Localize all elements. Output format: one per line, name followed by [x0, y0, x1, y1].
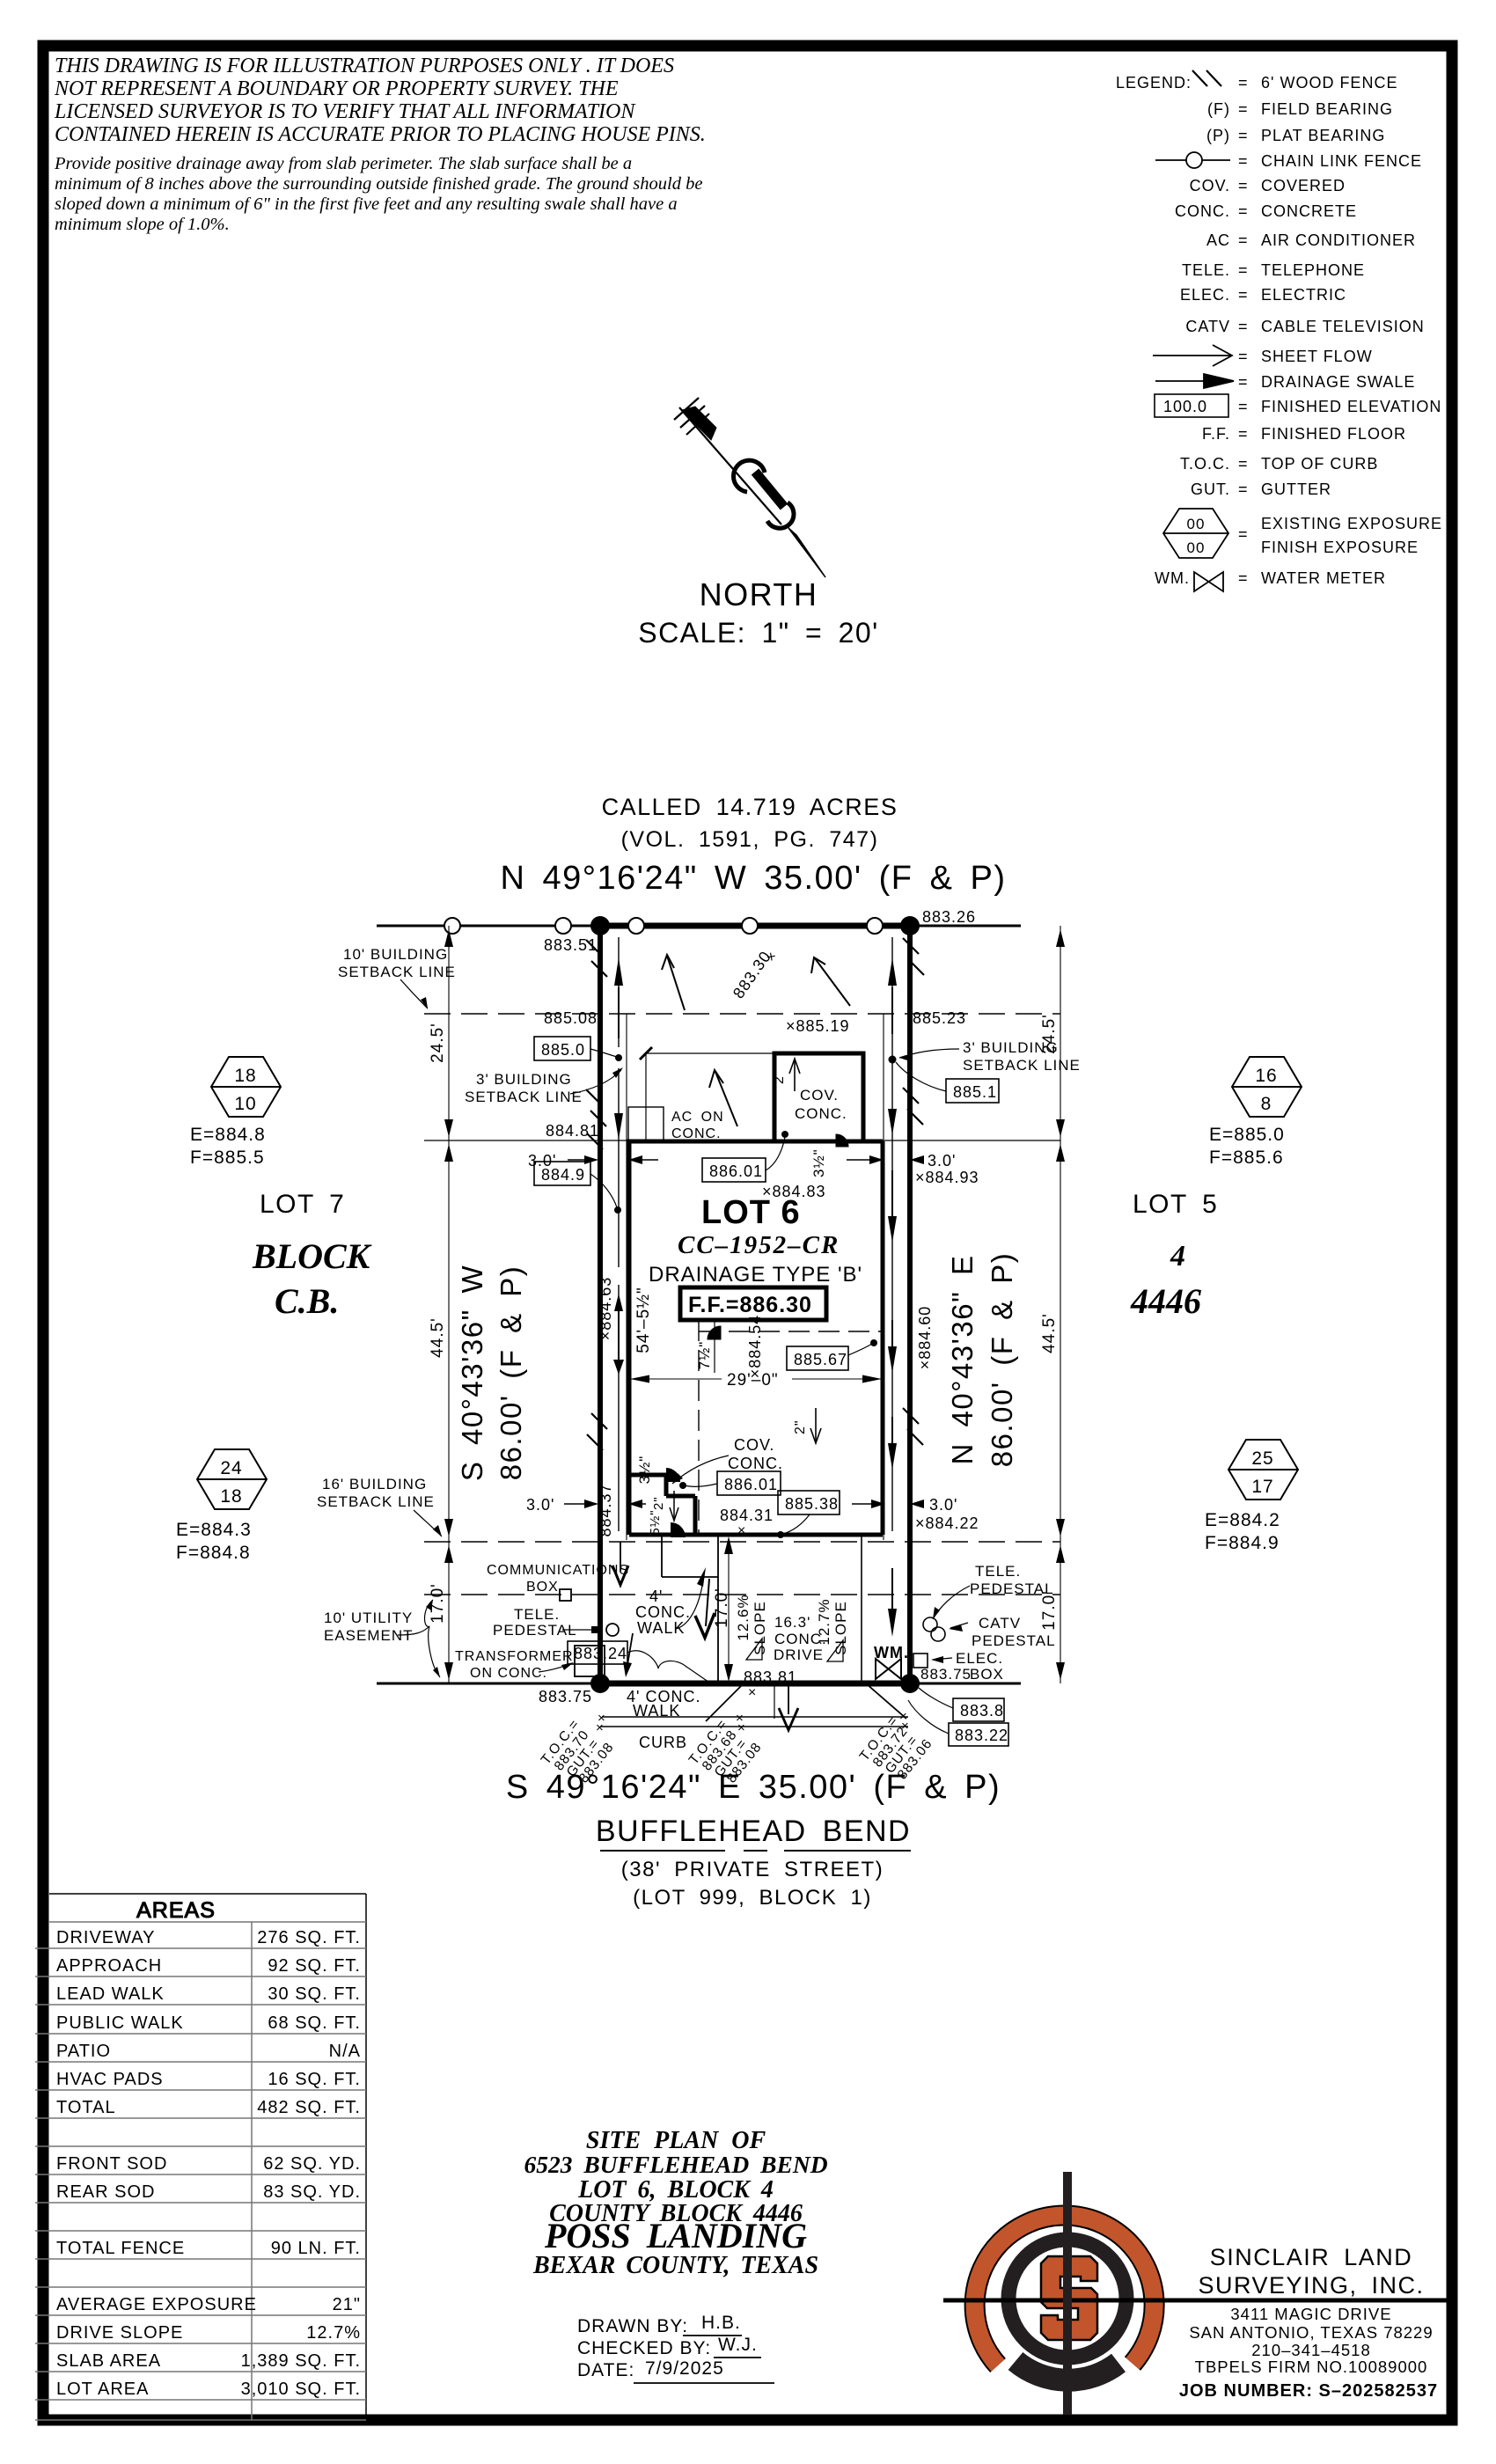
svg-text:HVAC PADS: HVAC PADS	[56, 2070, 164, 2089]
svg-text:W.J.: W.J.	[718, 2335, 758, 2355]
svg-text:ELEC.: ELEC.	[956, 1650, 1003, 1667]
svg-text:=: =	[1238, 74, 1249, 92]
svg-text:=: =	[1238, 480, 1249, 498]
svg-text:=: =	[1238, 398, 1249, 415]
svg-text:COV.: COV.	[800, 1087, 839, 1104]
svg-text:24.5': 24.5'	[1040, 1014, 1059, 1054]
svg-text:885.08: 885.08	[544, 1009, 598, 1027]
svg-text:883.8: 883.8	[960, 1702, 1004, 1720]
svg-text:883.22: 883.22	[955, 1727, 1008, 1744]
svg-text:883.75: 883.75	[539, 1688, 592, 1705]
svg-text:sloped down a minimum of 6" in: sloped down a minimum of 6" in the first…	[55, 194, 678, 214]
svg-text:WM.: WM.	[874, 1644, 909, 1661]
svg-text:54'–5½": 54'–5½"	[634, 1287, 653, 1353]
svg-text:COVERED: COVERED	[1261, 177, 1346, 194]
svg-text:=: =	[1238, 177, 1249, 194]
svg-text:24: 24	[220, 1458, 242, 1478]
svg-text:NOT REPRESENT A BOUNDARY OR PR: NOT REPRESENT A BOUNDARY OR PROPERTY SUR…	[54, 77, 619, 100]
svg-text:83 SQ. YD.: 83 SQ. YD.	[263, 2182, 361, 2202]
svg-text:×884.54: ×884.54	[746, 1315, 764, 1379]
svg-text:3,010 SQ. FT.: 3,010 SQ. FT.	[241, 2380, 361, 2399]
svg-text:86.00' (F & P): 86.00' (F & P)	[986, 1252, 1018, 1468]
svg-text:62 SQ. YD.: 62 SQ. YD.	[263, 2154, 361, 2174]
svg-text:(F): (F)	[1207, 100, 1230, 118]
svg-text:44.5': 44.5'	[429, 1317, 447, 1358]
svg-text:885.23: 885.23	[913, 1009, 966, 1027]
svg-text:16' BUILDING: 16' BUILDING	[322, 1476, 427, 1492]
svg-text:=: =	[1238, 202, 1249, 220]
svg-text:CHAIN LINK FENCE: CHAIN LINK FENCE	[1261, 152, 1422, 170]
svg-text:12.6%: 12.6%	[735, 1594, 752, 1640]
svg-text:883.26: 883.26	[922, 908, 976, 926]
svg-text:CONCRETE: CONCRETE	[1261, 202, 1357, 220]
svg-text:SLOPE: SLOPE	[752, 1601, 768, 1655]
svg-text:885.1: 885.1	[953, 1083, 997, 1101]
svg-text:S 40°43'36" W: S 40°43'36" W	[456, 1265, 488, 1481]
svg-text:PEDESTAL: PEDESTAL	[970, 1580, 1054, 1597]
svg-text:CURB: CURB	[639, 1734, 687, 1751]
svg-text:=: =	[1238, 569, 1249, 587]
svg-text:F=885.6: F=885.6	[1209, 1148, 1284, 1168]
svg-text:REAR SOD: REAR SOD	[56, 2182, 155, 2202]
svg-text:DRAINAGE TYPE 'B': DRAINAGE TYPE 'B'	[649, 1263, 862, 1287]
svg-text:COMMUNICATIONS: COMMUNICATIONS	[487, 1563, 629, 1578]
svg-text:CALLED 14.719 ACRES: CALLED 14.719 ACRES	[602, 794, 898, 820]
svg-text:CONC.: CONC.	[635, 1603, 691, 1621]
svg-text:CC–1952–CR: CC–1952–CR	[678, 1231, 840, 1259]
svg-text:CONC.: CONC.	[728, 1455, 783, 1472]
svg-text:×884.63: ×884.63	[597, 1277, 614, 1341]
svg-text:COV.: COV.	[734, 1436, 774, 1454]
svg-text:AREAS: AREAS	[136, 1898, 216, 1923]
svg-text:F.F.=886.30: F.F.=886.30	[688, 1293, 812, 1317]
svg-text:SETBACK LINE: SETBACK LINE	[465, 1089, 583, 1105]
svg-text:N 49°16'24" W 35.00' (F & P): N 49°16'24" W 35.00' (F & P)	[501, 860, 1007, 897]
svg-text:884.9: 884.9	[541, 1166, 585, 1184]
svg-text:×: ×	[737, 1523, 746, 1538]
svg-text:JOB NUMBER: S–202582537: JOB NUMBER: S–202582537	[1179, 2381, 1438, 2401]
svg-text:BUFFLEHEAD BEND: BUFFLEHEAD BEND	[596, 1815, 911, 1848]
svg-text:884.37: 884.37	[597, 1483, 614, 1536]
svg-text:44.5': 44.5'	[1040, 1313, 1059, 1353]
svg-text:TBPELS FIRM NO.10089000: TBPELS FIRM NO.10089000	[1195, 2358, 1428, 2376]
svg-text:00: 00	[1187, 539, 1206, 556]
svg-text:6523 BUFFLEHEAD BEND: 6523 BUFFLEHEAD BEND	[524, 2151, 827, 2178]
svg-text:minimum slope of 1.0%.: minimum slope of 1.0%.	[55, 215, 230, 234]
svg-text:FINISH EXPOSURE: FINISH EXPOSURE	[1261, 539, 1419, 556]
svg-text:LOT 5: LOT 5	[1133, 1190, 1218, 1219]
svg-text:883.51: 883.51	[544, 936, 598, 954]
svg-text:7½": 7½"	[696, 1341, 713, 1370]
svg-text:=: =	[1238, 348, 1249, 365]
svg-text:LOT 7: LOT 7	[260, 1190, 345, 1219]
svg-text:CATV: CATV	[1185, 318, 1230, 335]
svg-text:AVERAGE EXPOSURE: AVERAGE EXPOSURE	[56, 2295, 257, 2314]
svg-text:E=884.3: E=884.3	[176, 1520, 252, 1540]
svg-text:×885.19: ×885.19	[786, 1017, 850, 1035]
svg-text:×: ×	[737, 1720, 746, 1735]
svg-text:2": 2"	[651, 1496, 666, 1510]
svg-text:Provide positive drainage away: Provide positive drainage away from slab…	[54, 154, 632, 173]
svg-text:NORTH: NORTH	[700, 576, 818, 612]
svg-text:=: =	[1238, 231, 1249, 249]
svg-text:=: =	[1238, 127, 1249, 144]
svg-text:T.O.C.: T.O.C.	[1180, 455, 1230, 473]
svg-text:SURVEYING, INC.: SURVEYING, INC.	[1198, 2272, 1424, 2299]
svg-text:TOP OF CURB: TOP OF CURB	[1261, 455, 1378, 473]
svg-text:LEAD WALK: LEAD WALK	[56, 1984, 165, 2004]
svg-text:C.B.: C.B.	[275, 1281, 339, 1321]
svg-text:CHECKED BY:: CHECKED BY:	[577, 2338, 711, 2358]
svg-text:30 SQ. FT.: 30 SQ. FT.	[268, 1984, 361, 2004]
svg-text:PEDESTAL: PEDESTAL	[972, 1632, 1056, 1649]
svg-text:ELEC.: ELEC.	[1180, 286, 1230, 304]
svg-text:BOX: BOX	[970, 1666, 1004, 1683]
svg-text:2": 2"	[793, 1419, 808, 1434]
svg-text:LEGEND:: LEGEND:	[1116, 74, 1192, 92]
svg-text:4': 4'	[649, 1588, 663, 1605]
svg-text:GUTTER: GUTTER	[1261, 480, 1331, 498]
svg-text:3' BUILDING: 3' BUILDING	[476, 1071, 572, 1088]
svg-text:CONTAINED HEREIN IS ACCURATE P: CONTAINED HEREIN IS ACCURATE PRIOR TO PL…	[55, 123, 706, 146]
svg-text:SAN ANTONIO, TEXAS 78229: SAN ANTONIO, TEXAS 78229	[1189, 2323, 1433, 2342]
svg-text:BOX: BOX	[526, 1580, 559, 1595]
svg-text:FINISHED ELEVATION: FINISHED ELEVATION	[1261, 398, 1441, 415]
svg-text:TELE.: TELE.	[975, 1563, 1021, 1580]
svg-text:DRIVEWAY: DRIVEWAY	[56, 1928, 155, 1947]
svg-text:TELE.: TELE.	[1182, 261, 1230, 279]
svg-text:BLOCK: BLOCK	[252, 1236, 372, 1276]
svg-text:3½": 3½"	[636, 1456, 653, 1485]
svg-text:4446: 4446	[1130, 1281, 1201, 1321]
svg-text:TOTAL: TOTAL	[56, 2098, 116, 2117]
svg-text:883.81: 883.81	[744, 1668, 797, 1686]
svg-text:LOT AREA: LOT AREA	[56, 2380, 149, 2399]
svg-text:1,389 SQ. FT.: 1,389 SQ. FT.	[241, 2351, 361, 2371]
svg-text:BEXAR COUNTY, TEXAS: BEXAR COUNTY, TEXAS	[532, 2252, 818, 2279]
svg-text:WM.: WM.	[1155, 569, 1190, 587]
svg-text:6' WOOD FENCE: 6' WOOD FENCE	[1261, 74, 1397, 92]
svg-text:SLOPE: SLOPE	[832, 1601, 849, 1655]
svg-text:2": 2"	[772, 1069, 787, 1084]
svg-text:SLAB AREA: SLAB AREA	[56, 2351, 161, 2371]
svg-text:883.75: 883.75	[920, 1666, 972, 1683]
svg-text:×: ×	[596, 1720, 605, 1735]
svg-text:DRAINAGE SWALE: DRAINAGE SWALE	[1261, 373, 1415, 391]
svg-text:F.F.: F.F.	[1202, 425, 1230, 443]
svg-text:885.0: 885.0	[541, 1041, 585, 1059]
svg-text:SETBACK LINE: SETBACK LINE	[963, 1057, 1081, 1074]
svg-text:4: 4	[1170, 1240, 1185, 1272]
svg-text:(P): (P)	[1206, 127, 1230, 144]
svg-text:minimum of 8 inches above the: minimum of 8 inches above the surroundin…	[55, 174, 702, 194]
svg-text:S 49°16'24" E 35.00' (F & P): S 49°16'24" E 35.00' (F & P)	[506, 1769, 1001, 1806]
svg-text:CABLE TELEVISION: CABLE TELEVISION	[1261, 318, 1425, 335]
svg-text:884.31: 884.31	[720, 1507, 774, 1524]
svg-text:AIR CONDITIONER: AIR CONDITIONER	[1261, 231, 1416, 249]
svg-text:25: 25	[1251, 1448, 1273, 1469]
svg-text:8: 8	[1261, 1094, 1272, 1114]
svg-text:TELE.: TELE.	[514, 1606, 560, 1623]
svg-text:CONC.: CONC.	[671, 1126, 722, 1141]
svg-text:FINISHED FLOOR: FINISHED FLOOR	[1261, 425, 1406, 443]
svg-text:N 40°43'36" E: N 40°43'36" E	[946, 1254, 979, 1464]
svg-text:TOTAL FENCE: TOTAL FENCE	[56, 2239, 185, 2258]
svg-text:18: 18	[234, 1066, 256, 1086]
svg-text:5½": 5½"	[648, 1509, 663, 1535]
svg-text:482 SQ. FT.: 482 SQ. FT.	[257, 2098, 361, 2117]
svg-text:POSS LANDING: POSS LANDING	[544, 2216, 807, 2255]
svg-text:90 LN. FT.: 90 LN. FT.	[271, 2239, 361, 2258]
svg-text:=: =	[1238, 425, 1249, 443]
svg-text:68 SQ. FT.: 68 SQ. FT.	[268, 2013, 361, 2033]
svg-text:EXISTING EXPOSURE: EXISTING EXPOSURE	[1261, 515, 1442, 532]
svg-text:AC ON: AC ON	[671, 1110, 724, 1125]
svg-text:00: 00	[1187, 516, 1206, 532]
svg-text:210–341–4518: 210–341–4518	[1251, 2341, 1370, 2359]
svg-text:3½": 3½"	[810, 1148, 827, 1177]
svg-text:N/A: N/A	[329, 2042, 361, 2061]
svg-text:DRAWN BY:: DRAWN BY:	[577, 2316, 688, 2336]
svg-text:10: 10	[234, 1094, 256, 1114]
svg-text:PATIO: PATIO	[56, 2042, 111, 2061]
svg-text:DRIVE SLOPE: DRIVE SLOPE	[56, 2323, 183, 2343]
svg-text:F=884.8: F=884.8	[176, 1543, 251, 1563]
svg-text:ELECTRIC: ELECTRIC	[1261, 286, 1346, 304]
svg-text:TELEPHONE: TELEPHONE	[1261, 261, 1365, 279]
svg-text:LOT 6: LOT 6	[701, 1194, 801, 1231]
svg-text:DATE:: DATE:	[577, 2360, 634, 2380]
svg-text:10' BUILDING: 10' BUILDING	[343, 946, 448, 963]
svg-text:=: =	[1238, 286, 1249, 304]
svg-text:CONC.: CONC.	[795, 1105, 847, 1122]
svg-text:×884.93: ×884.93	[915, 1169, 979, 1186]
svg-text:(38' PRIVATE STREET): (38' PRIVATE STREET)	[621, 1858, 884, 1881]
svg-text:AC: AC	[1206, 231, 1230, 249]
svg-text:886.01: 886.01	[724, 1476, 778, 1493]
svg-text:16: 16	[1255, 1066, 1277, 1086]
svg-text:276 SQ. FT.: 276 SQ. FT.	[257, 1928, 361, 1947]
svg-text:DRIVE: DRIVE	[774, 1646, 824, 1663]
svg-text:ON CONC.: ON CONC.	[470, 1666, 547, 1681]
svg-text:E=885.0: E=885.0	[1209, 1125, 1285, 1145]
svg-text:H.B.: H.B.	[701, 2313, 741, 2333]
svg-text:=: =	[1238, 318, 1249, 335]
svg-text:FIELD BEARING: FIELD BEARING	[1261, 100, 1393, 118]
svg-text:24.5': 24.5'	[429, 1023, 447, 1063]
svg-text:E=884.8: E=884.8	[190, 1125, 266, 1145]
svg-text:12.7%: 12.7%	[306, 2323, 361, 2343]
svg-text:=: =	[1238, 100, 1249, 118]
svg-text:885.67: 885.67	[794, 1351, 847, 1368]
svg-text:3.0': 3.0'	[929, 1496, 957, 1514]
svg-text:THIS DRAWING IS FOR ILLUSTRATI: THIS DRAWING IS FOR ILLUSTRATION PURPOSE…	[55, 55, 674, 77]
svg-text:E=884.2: E=884.2	[1205, 1510, 1280, 1530]
svg-text:3411 MAGIC DRIVE: 3411 MAGIC DRIVE	[1230, 2305, 1391, 2323]
svg-text:=: =	[1238, 525, 1249, 543]
svg-text:7/9/2025: 7/9/2025	[645, 2358, 724, 2379]
svg-text:SCALE: 1" = 20': SCALE: 1" = 20'	[638, 617, 879, 649]
svg-text:F=885.5: F=885.5	[190, 1148, 265, 1168]
svg-text:FRONT SOD: FRONT SOD	[56, 2154, 167, 2174]
svg-text:×884.22: ×884.22	[915, 1514, 979, 1532]
svg-text:CATV: CATV	[979, 1615, 1021, 1632]
svg-text:SHEET FLOW: SHEET FLOW	[1261, 348, 1373, 365]
svg-text:GUT.: GUT.	[1191, 480, 1230, 498]
svg-text:=: =	[1238, 455, 1249, 473]
svg-text:886.01: 886.01	[709, 1162, 763, 1180]
svg-text:(LOT 999, BLOCK 1): (LOT 999, BLOCK 1)	[633, 1886, 872, 1910]
svg-text:TRANSFORMER: TRANSFORMER	[455, 1649, 574, 1664]
svg-text:=: =	[1238, 152, 1249, 170]
svg-text:21": 21"	[333, 2295, 361, 2314]
svg-text:86.00' (F & P): 86.00' (F & P)	[495, 1265, 527, 1481]
svg-text:16.3': 16.3'	[774, 1614, 810, 1631]
svg-text:×884.60: ×884.60	[916, 1306, 934, 1370]
svg-text:SETBACK LINE: SETBACK LINE	[338, 964, 456, 980]
svg-text:16 SQ. FT.: 16 SQ. FT.	[268, 2070, 361, 2089]
svg-text:=: =	[1238, 373, 1249, 391]
svg-text:885.38: 885.38	[785, 1495, 839, 1513]
svg-text:(VOL. 1591, PG. 747): (VOL. 1591, PG. 747)	[621, 827, 879, 852]
svg-text:883.24: 883.24	[574, 1645, 627, 1662]
svg-text:WATER METER: WATER METER	[1261, 569, 1386, 587]
svg-text:10' UTILITY: 10' UTILITY	[324, 1610, 413, 1626]
svg-text:100.0: 100.0	[1163, 398, 1207, 415]
svg-text:PUBLIC WALK: PUBLIC WALK	[56, 2013, 184, 2033]
svg-text:3.0': 3.0'	[928, 1152, 956, 1170]
svg-text:=: =	[1238, 261, 1249, 279]
svg-text:PLAT BEARING: PLAT BEARING	[1261, 127, 1385, 144]
svg-text:17.0': 17.0'	[713, 1588, 731, 1628]
svg-text:×: ×	[748, 1685, 757, 1700]
svg-text:LICENSED SURVEYOR IS TO VERIFY: LICENSED SURVEYOR IS TO VERIFY THAT ALL …	[54, 100, 636, 123]
svg-text:F=884.9: F=884.9	[1205, 1533, 1280, 1553]
svg-text:SINCLAIR LAND: SINCLAIR LAND	[1210, 2244, 1413, 2270]
svg-text:COV.: COV.	[1190, 177, 1230, 194]
svg-text:SETBACK LINE: SETBACK LINE	[317, 1493, 435, 1510]
svg-text:3.0': 3.0'	[526, 1496, 554, 1514]
svg-text:17: 17	[1251, 1477, 1273, 1497]
svg-text:18: 18	[220, 1486, 242, 1507]
svg-text:APPROACH: APPROACH	[56, 1956, 162, 1976]
svg-text:92 SQ. FT.: 92 SQ. FT.	[268, 1956, 361, 1976]
svg-text:CONC.: CONC.	[1175, 202, 1230, 220]
svg-text:12.7%: 12.7%	[816, 1598, 832, 1645]
svg-text:29'–0": 29'–0"	[727, 1371, 779, 1390]
